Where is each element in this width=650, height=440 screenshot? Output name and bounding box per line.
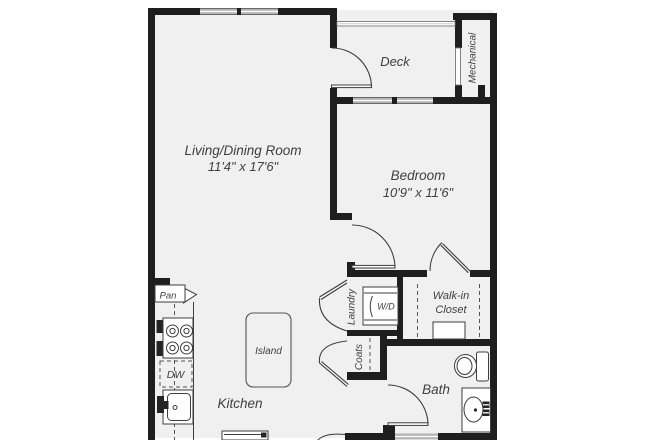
floor-area — [150, 10, 494, 438]
floor-plan-page: Living/Dining Room 11'4" x 17'6" Deck Me… — [0, 0, 650, 440]
bath-label: Bath — [422, 382, 450, 397]
living-dining-room-dimensions: 11'4" x 17'6" — [208, 159, 280, 174]
island-label: Island — [255, 346, 282, 357]
walk-in-closet-label-line2: Closet — [435, 304, 467, 316]
pantry-label: Pan — [160, 291, 177, 302]
deck-label: Deck — [380, 54, 411, 69]
floor-plan-drawing: Living/Dining Room 11'4" x 17'6" Deck Me… — [0, 0, 650, 440]
walk-in-closet-label-line1: Walk-in — [433, 290, 469, 302]
dishwasher-label: DW — [167, 369, 186, 381]
laundry-label: Laundry — [347, 288, 358, 325]
closet-shelf — [433, 322, 465, 339]
kitchen-label: Kitchen — [217, 396, 262, 411]
living-dining-room-label: Living/Dining Room — [184, 143, 301, 158]
coats-label: Coats — [354, 344, 365, 370]
bath-vanity-fixture — [462, 388, 491, 432]
washer-dryer-label: W/D — [377, 302, 395, 312]
bedroom-dimensions: 10'9" x 11'6" — [383, 185, 455, 200]
mechanical-louver-door — [456, 48, 461, 85]
mechanical-label: Mechanical — [468, 32, 479, 83]
bedroom-label: Bedroom — [391, 168, 446, 183]
refrigerator-fixture — [222, 431, 268, 440]
